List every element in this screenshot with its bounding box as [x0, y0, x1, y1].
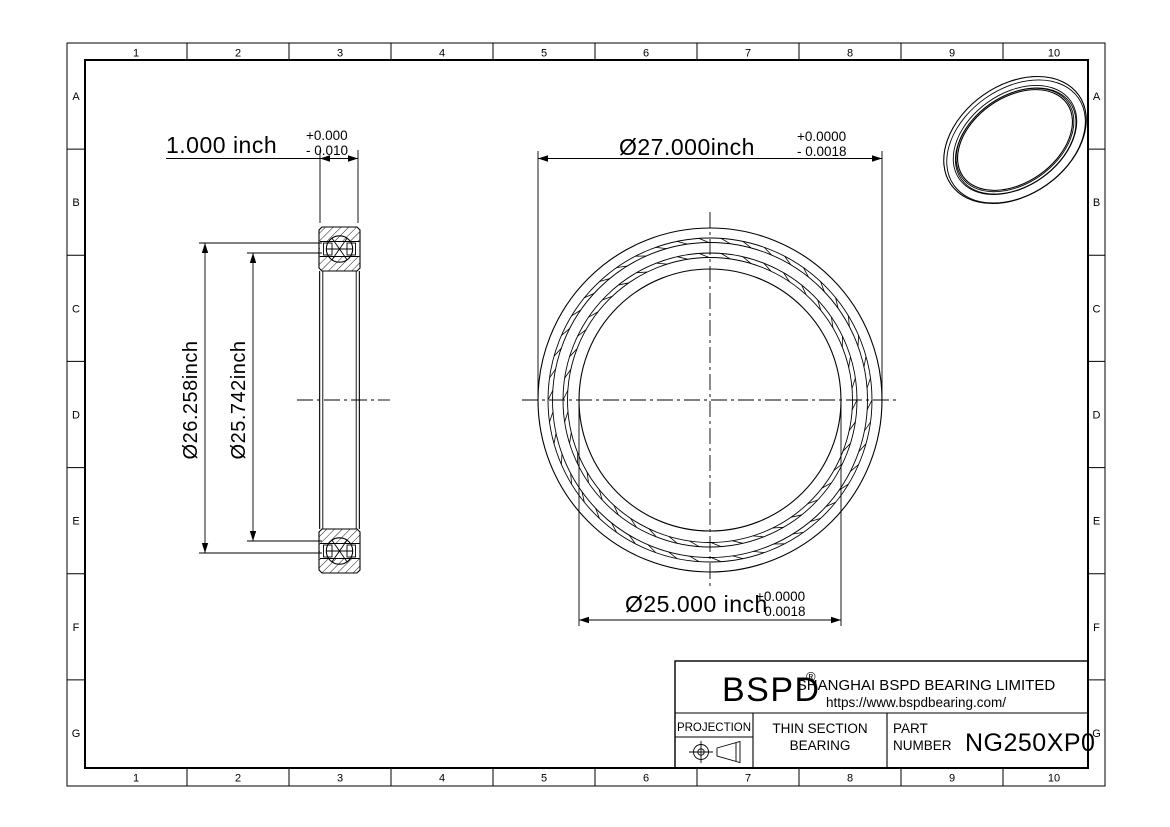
outer-diameter-text: Ø27.000inch [619, 134, 755, 160]
grid-col-label: 5 [541, 773, 547, 785]
grid-col-label: 10 [1048, 48, 1060, 60]
grid-row-label: G [72, 728, 81, 740]
width-tolerance-minus: - 0.010 [306, 143, 348, 158]
grid-row-label: E [1093, 516, 1100, 528]
company-website: https://www.bspdbearing.com/ [826, 695, 1006, 710]
grid-col-label: 10 [1048, 773, 1060, 785]
grid-col-label: 9 [949, 773, 955, 785]
drawing-page: 1122334455667788991010AABBCCDDEEFFGG [0, 0, 1170, 827]
grid-col-label: 9 [949, 48, 955, 60]
part-number-value: NG250XP0 [965, 729, 1095, 757]
grid-row-label: D [72, 410, 80, 422]
section-block-bottom [319, 529, 360, 573]
company-name: SHANGHAI BSPD BEARING LIMITED [797, 677, 1056, 694]
grid-col-label: 3 [337, 48, 343, 60]
grid-col-label: 7 [745, 773, 751, 785]
outer-race-dimension-text: Ø26.258inch [180, 341, 202, 460]
width-dimension-text: 1.000 inch [166, 132, 277, 158]
grid-col-label: 1 [133, 773, 139, 785]
bore-diameter-tolerance-plus: +0.0000 [756, 589, 805, 604]
grid-col-label: 5 [541, 48, 547, 60]
outer-diameter-tolerance-plus: +0.0000 [797, 129, 846, 144]
bore-diameter-tolerance-minus: - 0.0018 [756, 604, 806, 619]
grid-col-label: 2 [235, 48, 241, 60]
grid-col-label: 2 [235, 773, 241, 785]
grid-col-label: 1 [133, 48, 139, 60]
grid-row-label: B [72, 197, 79, 209]
grid-col-label: 4 [439, 773, 445, 785]
grid-col-label: 6 [643, 48, 649, 60]
grid-col-label: 7 [745, 48, 751, 60]
cage-tick [858, 335, 859, 346]
product-description-line2: BEARING [790, 738, 851, 753]
grid-col-label: 6 [643, 773, 649, 785]
grid-row-label: A [72, 91, 80, 103]
product-description-line1: THIN SECTION [772, 721, 867, 736]
grid-row-label: C [72, 303, 80, 315]
section-block-top [319, 227, 360, 271]
projection-label: PROJECTION [677, 722, 751, 734]
engineering-drawing: 1122334455667788991010AABBCCDDEEFFGG [0, 0, 1170, 827]
grid-row-label: E [72, 516, 79, 528]
part-number-label-line2: NUMBER [893, 738, 952, 753]
grid-row-label: F [73, 622, 80, 634]
grid-row-label: A [1093, 91, 1101, 103]
grid-col-label: 8 [847, 773, 853, 785]
grid-col-label: 4 [439, 48, 445, 60]
cage-tick [561, 454, 562, 465]
inner-race-dimension-text: Ø25.742inch [228, 341, 250, 460]
grid-col-label: 8 [847, 48, 853, 60]
part-number-label-line1: PART [893, 721, 928, 736]
grid-col-label: 3 [337, 773, 343, 785]
grid-row-label: B [1093, 197, 1100, 209]
grid-row-label: C [1093, 303, 1101, 315]
bore-diameter-text: Ø25.000 inch [625, 591, 768, 617]
outer-diameter-tolerance-minus: - 0.0018 [797, 144, 847, 159]
grid-row-label: F [1093, 622, 1100, 634]
width-tolerance-plus: +0.000 [306, 128, 348, 143]
grid-row-label: D [1093, 410, 1101, 422]
